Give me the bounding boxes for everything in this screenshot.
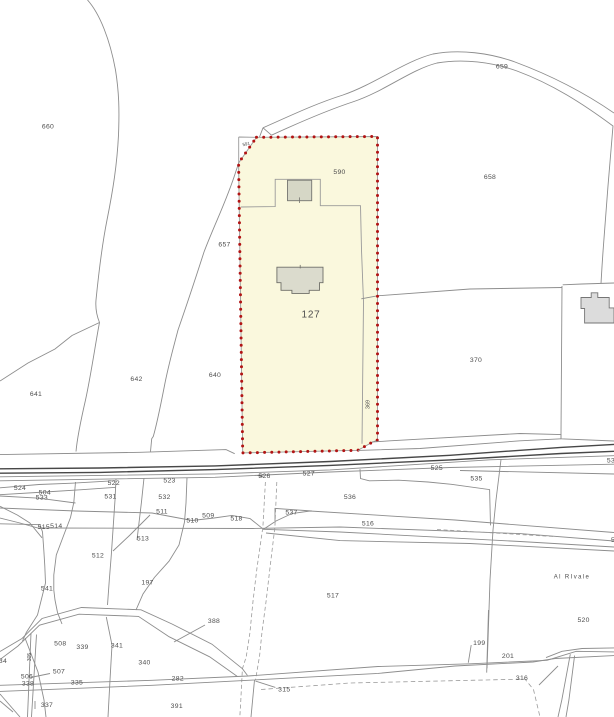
svg-text:514: 514 <box>50 523 62 530</box>
svg-text:658: 658 <box>484 174 496 181</box>
svg-text:527: 527 <box>303 471 315 478</box>
svg-text:388: 388 <box>208 618 220 625</box>
svg-text:523: 523 <box>163 478 175 485</box>
svg-text:337: 337 <box>41 702 53 709</box>
svg-text:315: 315 <box>278 687 290 694</box>
svg-text:642: 642 <box>130 376 142 383</box>
svg-text:537: 537 <box>285 510 297 517</box>
svg-text:335: 335 <box>71 680 83 687</box>
svg-text:516: 516 <box>362 521 374 528</box>
svg-text:508: 508 <box>54 641 66 648</box>
svg-text:391: 391 <box>171 703 183 710</box>
svg-text:197: 197 <box>141 580 153 587</box>
svg-text:340: 340 <box>138 660 150 667</box>
svg-text:370: 370 <box>470 357 482 364</box>
svg-text:535: 535 <box>470 476 482 483</box>
svg-text:525: 525 <box>431 465 443 472</box>
svg-text:369: 369 <box>365 400 371 409</box>
svg-text:532: 532 <box>158 494 170 501</box>
svg-text:201: 201 <box>502 653 514 660</box>
svg-text:305: 305 <box>27 653 33 662</box>
svg-text:507: 507 <box>53 669 65 676</box>
svg-text:520: 520 <box>577 617 589 624</box>
svg-text:513: 513 <box>137 536 149 543</box>
svg-text:531: 531 <box>104 494 116 501</box>
svg-text:536: 536 <box>344 494 356 501</box>
svg-text:518: 518 <box>230 516 242 523</box>
svg-text:659: 659 <box>496 64 508 71</box>
svg-text:522: 522 <box>108 480 120 487</box>
svg-text:316: 316 <box>516 675 528 682</box>
svg-text:657: 657 <box>218 242 230 249</box>
svg-text:640: 640 <box>209 372 221 379</box>
svg-text:127: 127 <box>301 310 320 321</box>
svg-text:341: 341 <box>111 643 123 650</box>
svg-text:526: 526 <box>258 473 270 480</box>
svg-text:541: 541 <box>41 586 53 593</box>
svg-text:34: 34 <box>0 658 7 665</box>
svg-text:509: 509 <box>202 513 214 520</box>
svg-text:282: 282 <box>172 676 184 683</box>
svg-text:511: 511 <box>156 509 168 516</box>
svg-text:338: 338 <box>22 681 34 688</box>
svg-text:524: 524 <box>14 485 26 492</box>
svg-text:641: 641 <box>30 391 42 398</box>
svg-text:199: 199 <box>473 640 485 647</box>
svg-text:Al RIvale: Al RIvale <box>554 575 591 581</box>
svg-text:660: 660 <box>42 124 54 131</box>
svg-text:512: 512 <box>92 553 104 560</box>
svg-text:510: 510 <box>186 518 198 525</box>
svg-text:590: 590 <box>333 169 345 176</box>
svg-text:515: 515 <box>38 524 50 531</box>
svg-text:517: 517 <box>327 593 339 600</box>
svg-text:533: 533 <box>36 495 48 502</box>
svg-text:339: 339 <box>76 644 88 651</box>
svg-text:53: 53 <box>607 458 614 465</box>
